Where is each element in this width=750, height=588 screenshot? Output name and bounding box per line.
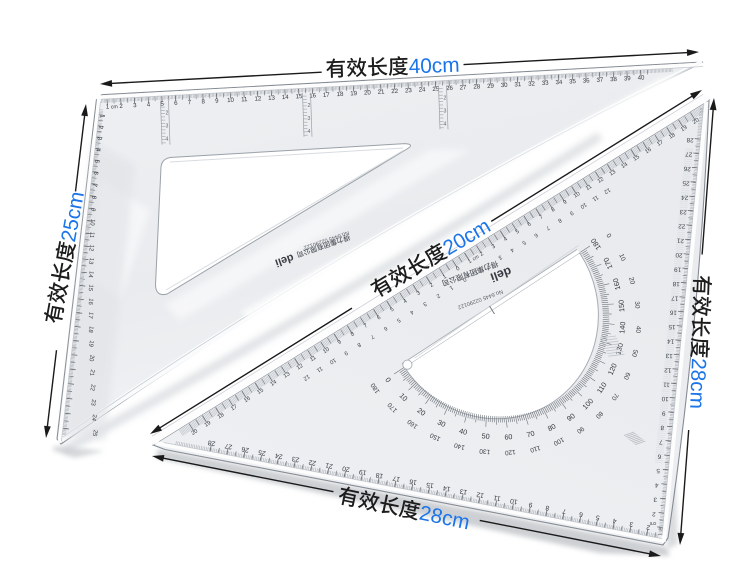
svg-text:2: 2 (308, 103, 311, 109)
svg-text:21: 21 (88, 369, 95, 377)
svg-text:12: 12 (254, 95, 262, 102)
svg-text:140: 140 (617, 321, 627, 334)
svg-text:16: 16 (669, 308, 677, 315)
svg-text:28: 28 (686, 136, 694, 143)
svg-text:37: 37 (596, 77, 604, 84)
svg-text:120: 120 (504, 448, 516, 456)
svg-text:3: 3 (308, 116, 311, 122)
svg-text:50: 50 (481, 431, 490, 441)
svg-text:3: 3 (166, 124, 169, 130)
svg-text:31: 31 (514, 81, 522, 88)
svg-text:15: 15 (668, 323, 676, 330)
svg-text:12: 12 (87, 244, 94, 252)
svg-text:21: 21 (378, 88, 386, 95)
svg-text:27: 27 (460, 84, 468, 91)
svg-text:39: 39 (624, 75, 632, 82)
svg-text:150: 150 (616, 300, 626, 313)
svg-text:28cm: 28cm (685, 358, 710, 410)
svg-text:22: 22 (88, 384, 95, 392)
svg-text:14: 14 (282, 94, 290, 101)
svg-text:12: 12 (664, 366, 672, 373)
svg-text:28: 28 (473, 83, 481, 90)
svg-text:40: 40 (634, 325, 642, 333)
svg-text:cm: cm (649, 520, 656, 526)
svg-text:40cm: 40cm (408, 54, 460, 79)
svg-text:21: 21 (676, 237, 684, 244)
svg-text:35: 35 (569, 78, 577, 85)
svg-text:15: 15 (295, 93, 303, 100)
svg-text:13: 13 (268, 94, 276, 101)
svg-text:27: 27 (685, 150, 693, 157)
svg-text:20: 20 (364, 89, 372, 96)
svg-text:17: 17 (87, 311, 94, 319)
svg-text:11: 11 (241, 96, 248, 103)
svg-text:2: 2 (444, 95, 447, 101)
svg-text:19: 19 (87, 340, 94, 348)
svg-text:24: 24 (680, 193, 688, 200)
svg-text:33: 33 (542, 80, 550, 87)
svg-text:17: 17 (671, 294, 679, 301)
svg-text:24: 24 (419, 86, 427, 93)
svg-text:23: 23 (679, 208, 687, 215)
svg-text:26: 26 (683, 165, 691, 172)
svg-text:4: 4 (308, 129, 311, 135)
svg-text:60: 60 (504, 432, 513, 442)
svg-text:29: 29 (487, 83, 495, 90)
svg-text:18: 18 (672, 280, 680, 287)
svg-text:17: 17 (323, 91, 331, 98)
svg-text:11: 11 (663, 381, 670, 388)
svg-text:30: 30 (501, 82, 509, 89)
svg-text:20: 20 (675, 251, 683, 258)
svg-text:19: 19 (673, 265, 681, 272)
svg-text:13: 13 (665, 352, 673, 359)
svg-text:cm: cm (111, 104, 118, 110)
svg-text:4: 4 (166, 137, 169, 143)
svg-text:25: 25 (682, 179, 690, 186)
svg-text:26: 26 (446, 85, 454, 92)
svg-text:2: 2 (166, 111, 169, 117)
svg-text:22: 22 (391, 88, 399, 95)
svg-text:22: 22 (678, 222, 686, 229)
svg-text:40: 40 (637, 74, 645, 81)
svg-text:38: 38 (610, 76, 618, 83)
svg-text:11: 11 (88, 231, 95, 238)
svg-text:10: 10 (227, 97, 235, 104)
svg-text:23: 23 (405, 87, 413, 94)
svg-text:30: 30 (633, 301, 641, 309)
svg-text:3: 3 (444, 108, 447, 114)
svg-text:14: 14 (666, 337, 674, 344)
svg-text:130: 130 (479, 447, 491, 455)
svg-text:36: 36 (583, 77, 591, 84)
svg-text:10: 10 (661, 395, 669, 402)
svg-text:4: 4 (444, 121, 447, 127)
svg-text:34: 34 (555, 79, 563, 86)
svg-text:19: 19 (350, 90, 358, 97)
svg-text:32: 32 (528, 80, 536, 87)
svg-text:18: 18 (336, 91, 344, 98)
